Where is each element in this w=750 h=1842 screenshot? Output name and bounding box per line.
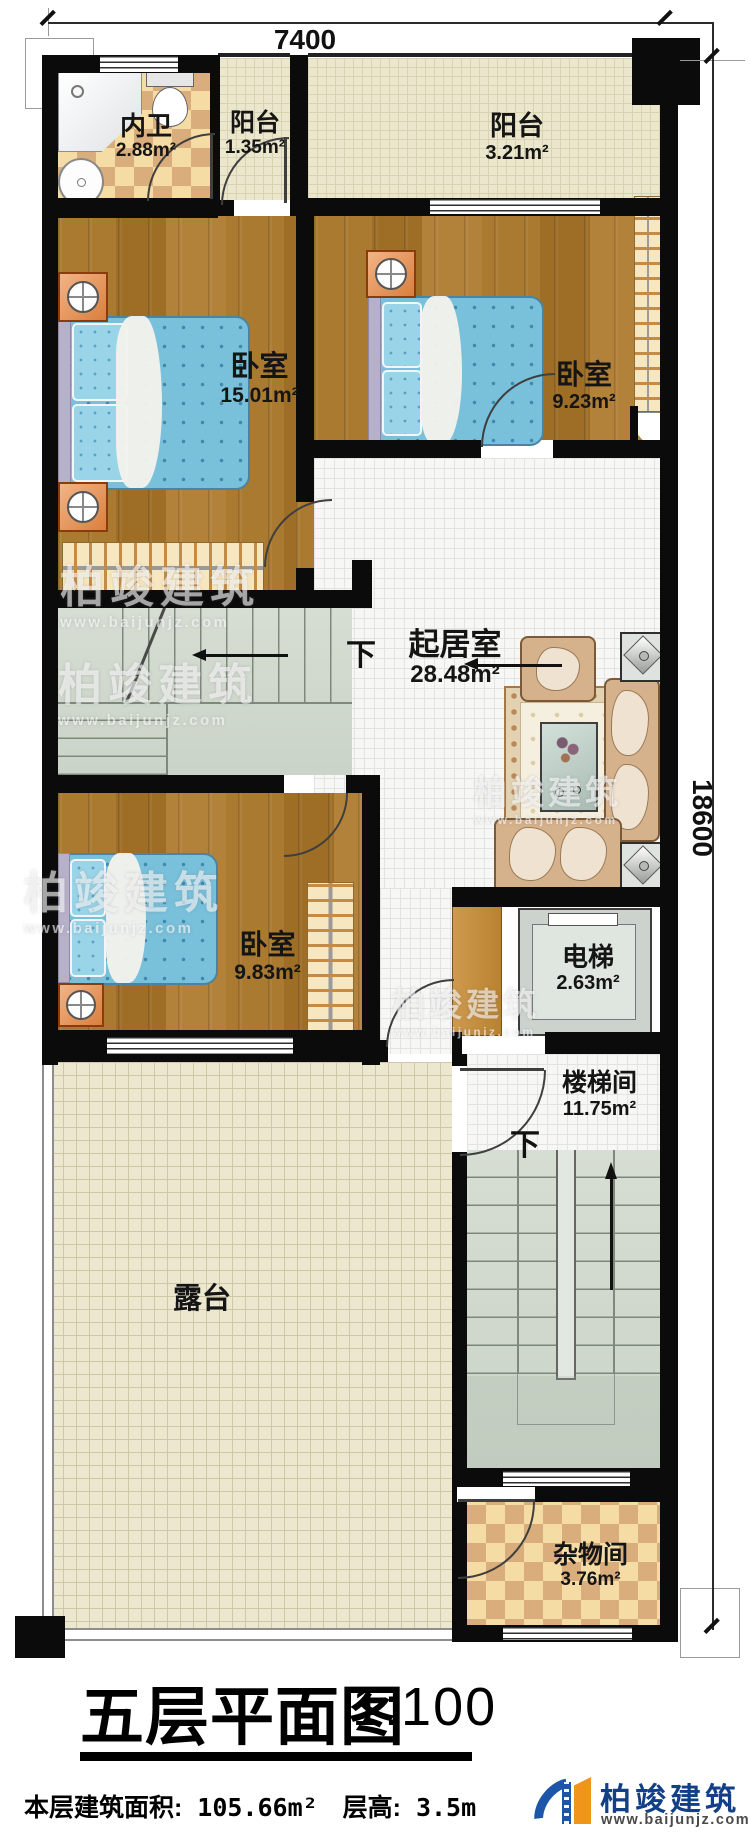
- room-label-storage: 杂物间 3.76m²: [528, 1542, 653, 1590]
- coffee-table: [540, 722, 598, 812]
- room-label-balcony-large: 阳台 3.21m²: [462, 112, 572, 164]
- room-area: 9.23m²: [552, 391, 615, 413]
- wall: [296, 568, 314, 592]
- room-name: 卧室: [230, 352, 288, 384]
- room-label-bedroom-south: 卧室 9.83m²: [210, 930, 325, 984]
- room-name: 杂物间: [553, 1542, 628, 1570]
- room-label-balcony-small: 阳台 1.35m²: [212, 110, 298, 158]
- dimension-height: 18600: [682, 763, 718, 873]
- down-label-stair-hall: 下: [510, 1120, 540, 1164]
- lamp-icon: [67, 281, 99, 313]
- floor-plan-page: 内卫 2.88m² 阳台 1.35m² 阳台 3.21m² 卧室 15.01m²…: [0, 0, 750, 1842]
- stair-divider-vertical: [166, 704, 168, 775]
- room-name: 阳台: [490, 112, 544, 142]
- brand-url: www.baijunjz.com: [601, 1812, 750, 1828]
- plan-scale: 1:100: [352, 1676, 497, 1738]
- cushion: [560, 827, 607, 881]
- room-name: 电梯: [562, 943, 614, 972]
- room-label-living-room: 起居室 28.48m²: [390, 628, 520, 688]
- stair-direction-arrowhead: [192, 649, 206, 661]
- room-area: 11.75m²: [563, 1098, 636, 1120]
- stair-up-arrowhead: [605, 1162, 617, 1179]
- lamp-icon: [66, 990, 96, 1020]
- stair-direction-line: [206, 654, 288, 657]
- room-area: 15.01m²: [220, 384, 298, 407]
- stair-landing-shade: [467, 1376, 660, 1468]
- nightstand: [58, 983, 104, 1027]
- brand-logo-icon: [538, 1770, 596, 1832]
- stair-guide-right: [613, 1150, 615, 1374]
- blanket-fold: [116, 316, 162, 488]
- room-name: 阳台: [230, 110, 280, 138]
- logo-tower-blue-icon: [562, 1782, 571, 1824]
- pillow: [382, 370, 422, 436]
- lamp-icon: [375, 258, 407, 290]
- wall: [352, 560, 372, 608]
- title-underline: [80, 1752, 472, 1761]
- headboard: [58, 853, 70, 983]
- room-area: 2.88m²: [116, 141, 176, 162]
- wall: [452, 1054, 467, 1066]
- room-label-terrace: 露台: [152, 1284, 252, 1316]
- blanket-fold: [106, 853, 146, 983]
- wall: [553, 440, 660, 458]
- room-area: 28.48m²: [410, 662, 499, 688]
- stair-up-line: [610, 1178, 613, 1290]
- dimension-width: 7400: [250, 24, 360, 56]
- wall: [42, 775, 284, 793]
- floor-terrace: [50, 1062, 452, 1628]
- headboard: [58, 316, 71, 488]
- down-label-living: 下: [346, 630, 376, 674]
- dimension-line-top: [48, 22, 712, 24]
- nightstand: [58, 272, 108, 322]
- blanket-fold: [420, 296, 462, 444]
- terrace-parapet-west: [42, 1062, 54, 1640]
- floor-height-label: 层高:: [343, 1794, 401, 1822]
- room-name: 露台: [173, 1284, 231, 1316]
- room-label-elevator: 电梯 2.63m²: [533, 943, 643, 994]
- window: [107, 1037, 293, 1054]
- wall: [314, 440, 481, 458]
- table-knob-icon: [555, 788, 564, 797]
- terrace-parapet-south: [42, 1628, 454, 1641]
- corner-column: [15, 1616, 65, 1658]
- elevator-door-slot: [548, 913, 618, 926]
- stair-center-rail: [556, 1150, 576, 1380]
- room-area: 3.21m²: [485, 142, 548, 164]
- bed-south: [58, 853, 218, 985]
- stair-divider-line: [58, 702, 352, 704]
- nightstand: [366, 250, 416, 298]
- room-name: 楼梯间: [562, 1070, 637, 1098]
- room-area: 3.76m²: [560, 1570, 620, 1591]
- window: [100, 56, 178, 72]
- wall: [42, 590, 372, 608]
- wall: [346, 775, 380, 793]
- lamp-icon: [67, 491, 99, 523]
- wardrobe: [62, 542, 264, 594]
- wall: [545, 1032, 678, 1054]
- room-label-bathroom: 内卫 2.88m²: [98, 112, 194, 161]
- room-label-stair-hall: 楼梯间 11.75m²: [537, 1070, 662, 1120]
- room-name: 起居室: [409, 628, 502, 662]
- room-name: 内卫: [120, 112, 172, 141]
- room-name: 卧室: [556, 360, 612, 391]
- floor-area-value: 105.66m²: [197, 1793, 317, 1822]
- cushion: [509, 827, 556, 881]
- window: [503, 1627, 632, 1640]
- staircase-lower: [467, 1150, 660, 1468]
- stair-guide-left: [517, 1150, 519, 1374]
- window: [503, 1471, 630, 1486]
- pillow: [70, 859, 106, 917]
- room-label-bedroom-master: 卧室 15.01m²: [202, 352, 317, 407]
- nightstand: [58, 482, 108, 532]
- door-leaf: [460, 1068, 544, 1071]
- table-flowers-icon: [552, 732, 584, 768]
- window-sliding: [430, 199, 600, 214]
- pillow: [382, 302, 422, 368]
- table-knob-icon: [573, 786, 581, 794]
- stair-treads-lower-flight: [58, 704, 166, 775]
- room-area: 1.35m²: [225, 138, 285, 159]
- room-name: 卧室: [239, 930, 295, 961]
- floor-height-value: 3.5m: [416, 1793, 476, 1822]
- wall-east: [660, 105, 678, 1642]
- stairwell-upper: [58, 608, 352, 775]
- corner-column: [632, 38, 700, 105]
- sofa-two-seat-south: [494, 818, 622, 896]
- lamp-knob-icon: [639, 861, 649, 871]
- wall-west: [42, 55, 58, 1065]
- room-area: 9.83m²: [234, 961, 301, 984]
- floor-area-label: 本层建筑面积:: [24, 1794, 182, 1822]
- cushion: [536, 647, 580, 691]
- armchair: [520, 636, 596, 702]
- door-leaf: [458, 1499, 535, 1502]
- hall-cabinet: [452, 892, 502, 1036]
- headboard: [368, 296, 381, 444]
- pillow: [70, 919, 106, 977]
- cushion: [611, 690, 649, 756]
- wall: [452, 887, 678, 907]
- floor-stats: 本层建筑面积: 105.66m² 层高: 3.5m: [24, 1788, 476, 1824]
- room-area: 2.63m²: [556, 972, 619, 994]
- wall: [362, 793, 380, 1065]
- room-label-bedroom-east: 卧室 9.23m²: [528, 360, 640, 413]
- lamp-knob-icon: [639, 651, 649, 661]
- sink-drain: [77, 178, 86, 187]
- wall: [42, 198, 218, 218]
- shower-drain: [71, 85, 84, 98]
